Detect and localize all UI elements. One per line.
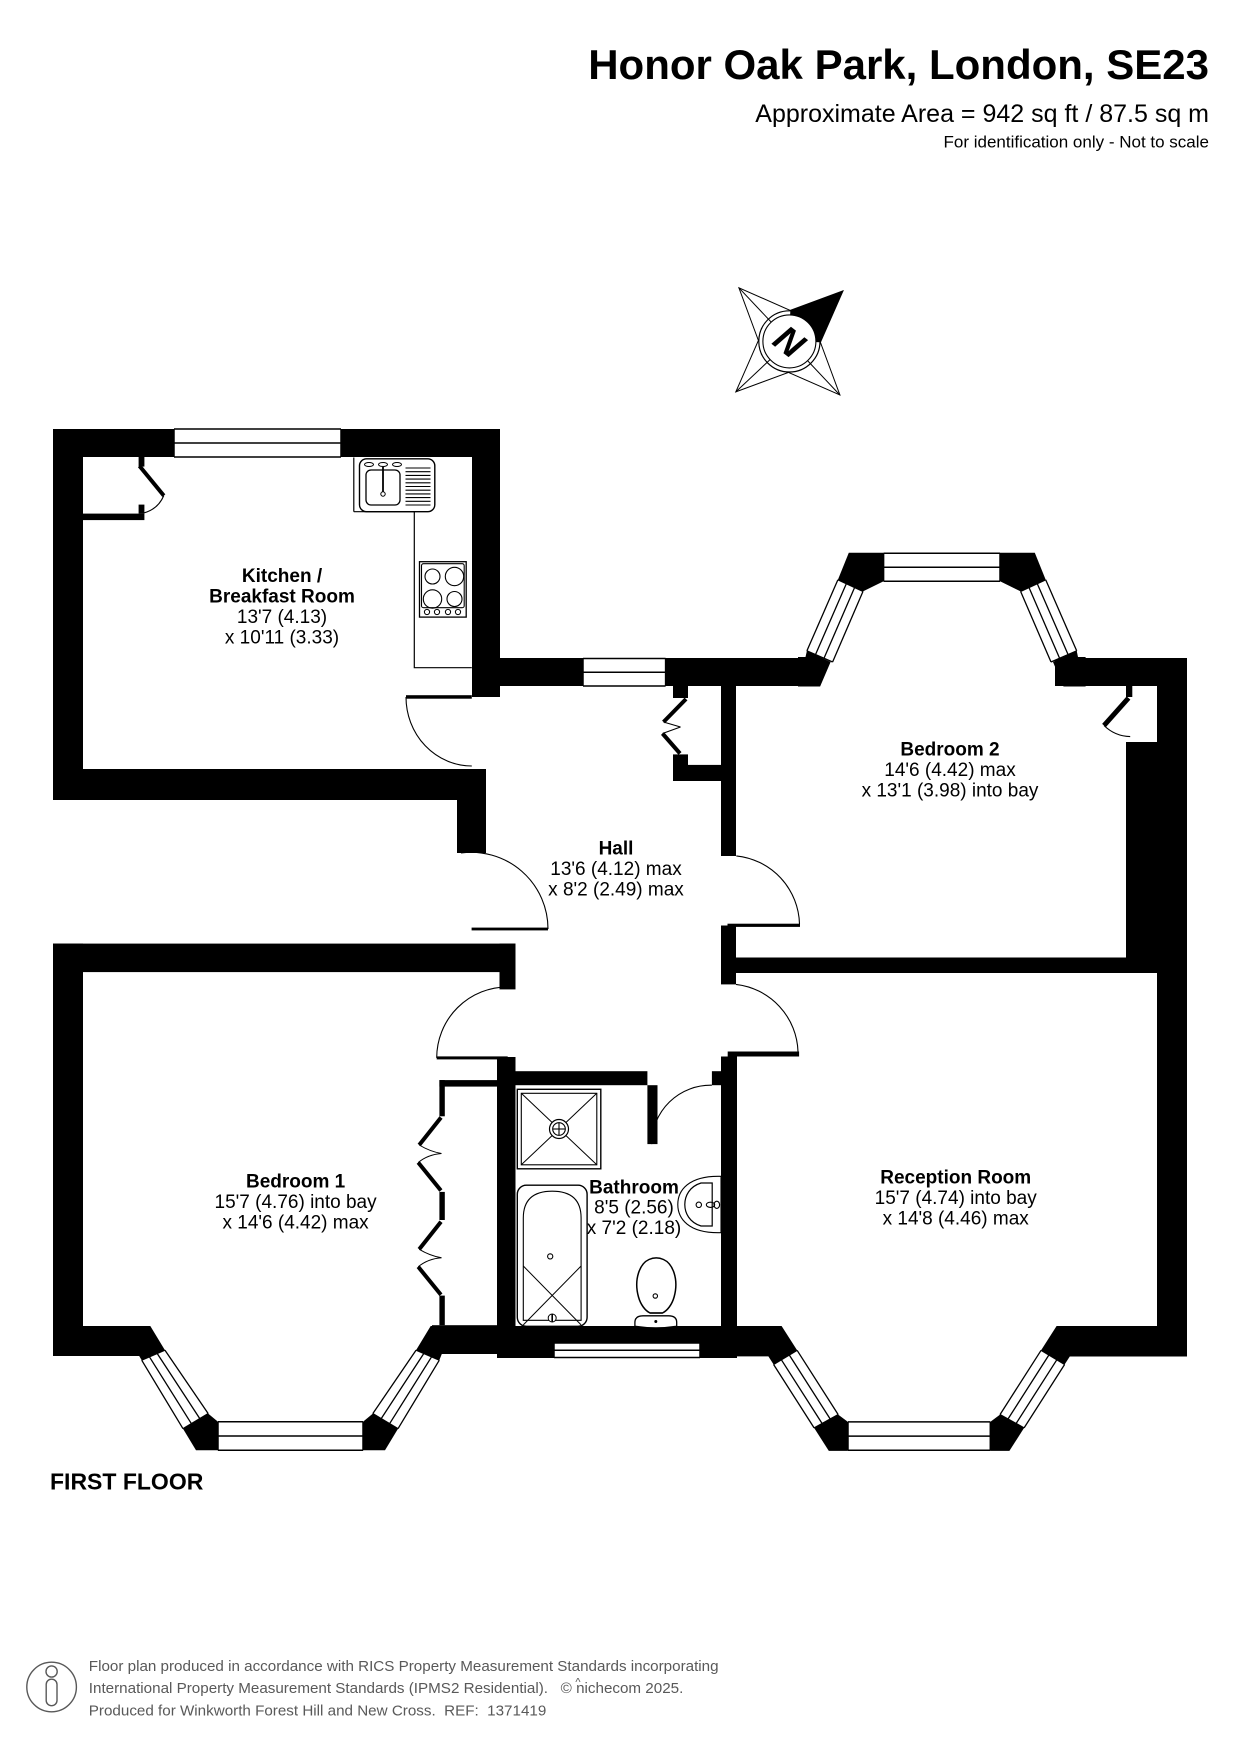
svg-text:Approximate Area = 942 sq ft /: Approximate Area = 942 sq ft / 87.5 sq m (755, 100, 1209, 128)
svg-text:15'7 (4.76) into bay: 15'7 (4.76) into bay (215, 1192, 378, 1213)
svg-text:Kitchen /: Kitchen / (242, 566, 323, 587)
svg-text:x 13'1 (3.98) into bay: x 13'1 (3.98) into bay (862, 780, 1039, 801)
svg-text:Produced for Winkworth Forest: Produced for Winkworth Forest Hill and N… (89, 1702, 547, 1719)
svg-text:FIRST FLOOR: FIRST FLOOR (50, 1469, 204, 1495)
svg-text:For identification only - Not: For identification only - Not to scale (943, 133, 1209, 152)
svg-text:Floor plan produced in accorda: Floor plan produced in accordance with R… (89, 1658, 719, 1675)
svg-text:Bedroom 1: Bedroom 1 (246, 1171, 346, 1192)
svg-text:13'6 (4.12) max: 13'6 (4.12) max (550, 859, 682, 880)
svg-text:13'7 (4.13): 13'7 (4.13) (237, 607, 327, 628)
svg-text:Breakfast Room: Breakfast Room (209, 587, 355, 608)
svg-text:Hall: Hall (599, 839, 634, 860)
svg-text:Bathroom: Bathroom (589, 1177, 679, 1198)
svg-text:Reception Room: Reception Room (880, 1168, 1031, 1189)
svg-text:International Property Measure: International Property Measurement Stand… (89, 1680, 684, 1697)
svg-text:Honor Oak Park, London, SE23: Honor Oak Park, London, SE23 (588, 41, 1209, 88)
svg-text:14'6 (4.42) max: 14'6 (4.42) max (884, 760, 1016, 781)
svg-text:x 14'8 (4.46) max: x 14'8 (4.46) max (883, 1208, 1030, 1229)
svg-text:x 10'11 (3.33): x 10'11 (3.33) (225, 628, 339, 649)
svg-text:x 14'6 (4.42) max: x 14'6 (4.42) max (222, 1213, 369, 1234)
svg-text:x 7'2 (2.18): x 7'2 (2.18) (587, 1218, 681, 1239)
svg-text:8'5 (2.56): 8'5 (2.56) (594, 1198, 674, 1219)
svg-text:Bedroom 2: Bedroom 2 (900, 740, 999, 761)
svg-text:^: ^ (575, 1677, 581, 1689)
svg-text:x 8'2 (2.49) max: x 8'2 (2.49) max (548, 880, 684, 901)
svg-text:15'7 (4.74) into bay: 15'7 (4.74) into bay (875, 1188, 1038, 1209)
